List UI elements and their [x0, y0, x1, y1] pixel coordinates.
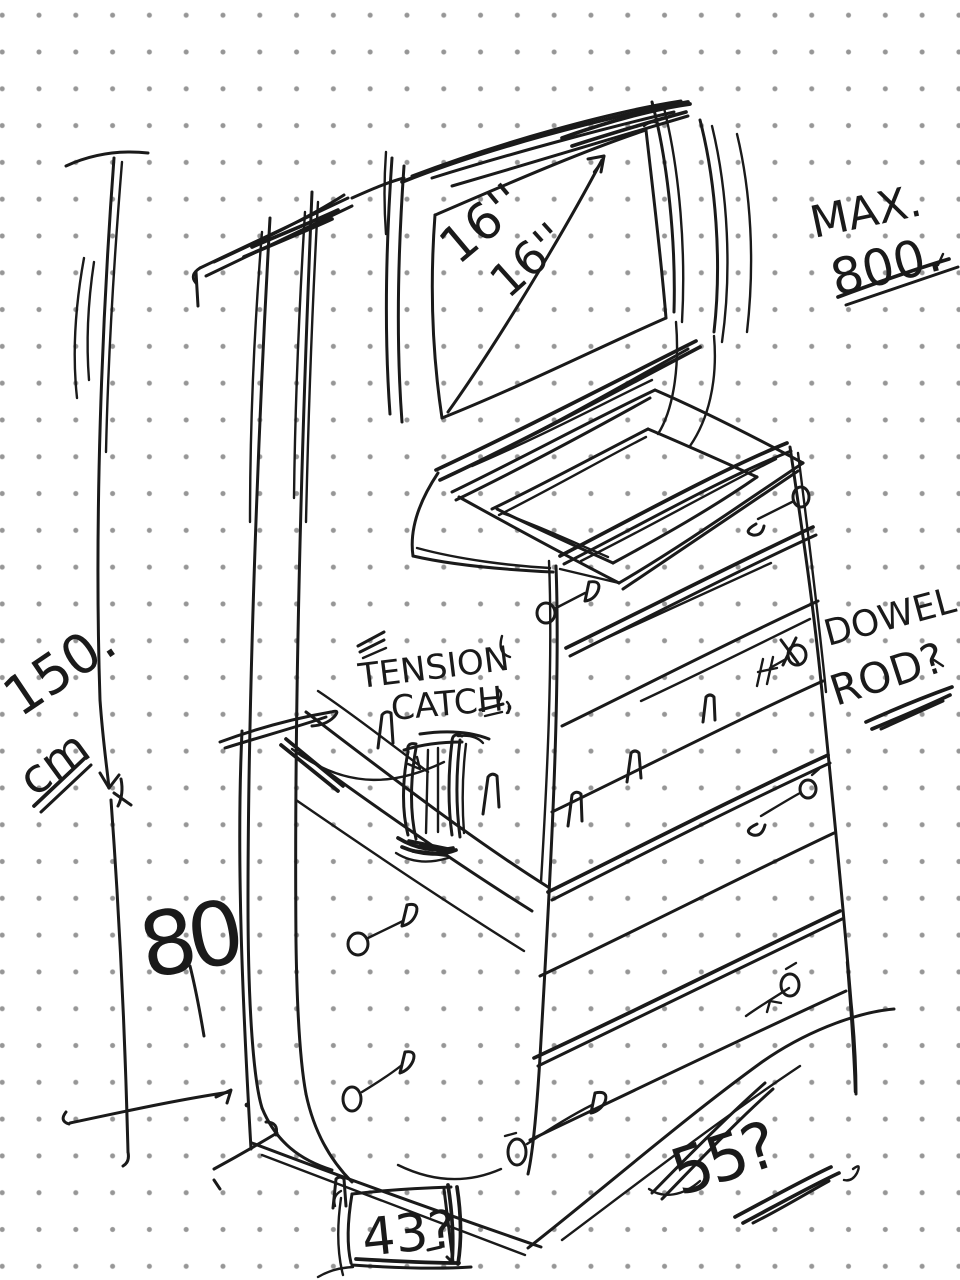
- dowel-marker: [746, 963, 799, 1016]
- annotation-height-unit: cm: [8, 719, 100, 807]
- cabinet-sketch: 16'' 16'' MAX. 800. 150. cm TENSION CATC…: [0, 0, 960, 1280]
- front-face-diagonals: [296, 691, 548, 951]
- sketch-canvas[interactable]: 16'' 16'' MAX. 800. 150. cm TENSION CATC…: [0, 0, 960, 1280]
- tension-catch-drawing: [396, 732, 489, 862]
- cabinet-head-monitor: [385, 101, 752, 480]
- dowel-marker: [537, 582, 599, 623]
- dowel-marker: [348, 904, 417, 955]
- dowel-marker: [343, 1052, 414, 1111]
- annotation-inner-height: 80: [132, 880, 247, 999]
- annotation-height-value: 150.: [0, 609, 127, 728]
- annotation-base-query: 43?: [359, 1199, 459, 1268]
- dowel-marker: [748, 769, 819, 835]
- annotation-dowel-word1: DOWEL.: [820, 577, 960, 654]
- keyboard-tray: [452, 390, 803, 589]
- dowel-marker: [757, 638, 806, 686]
- shelf-lines: [530, 527, 846, 1140]
